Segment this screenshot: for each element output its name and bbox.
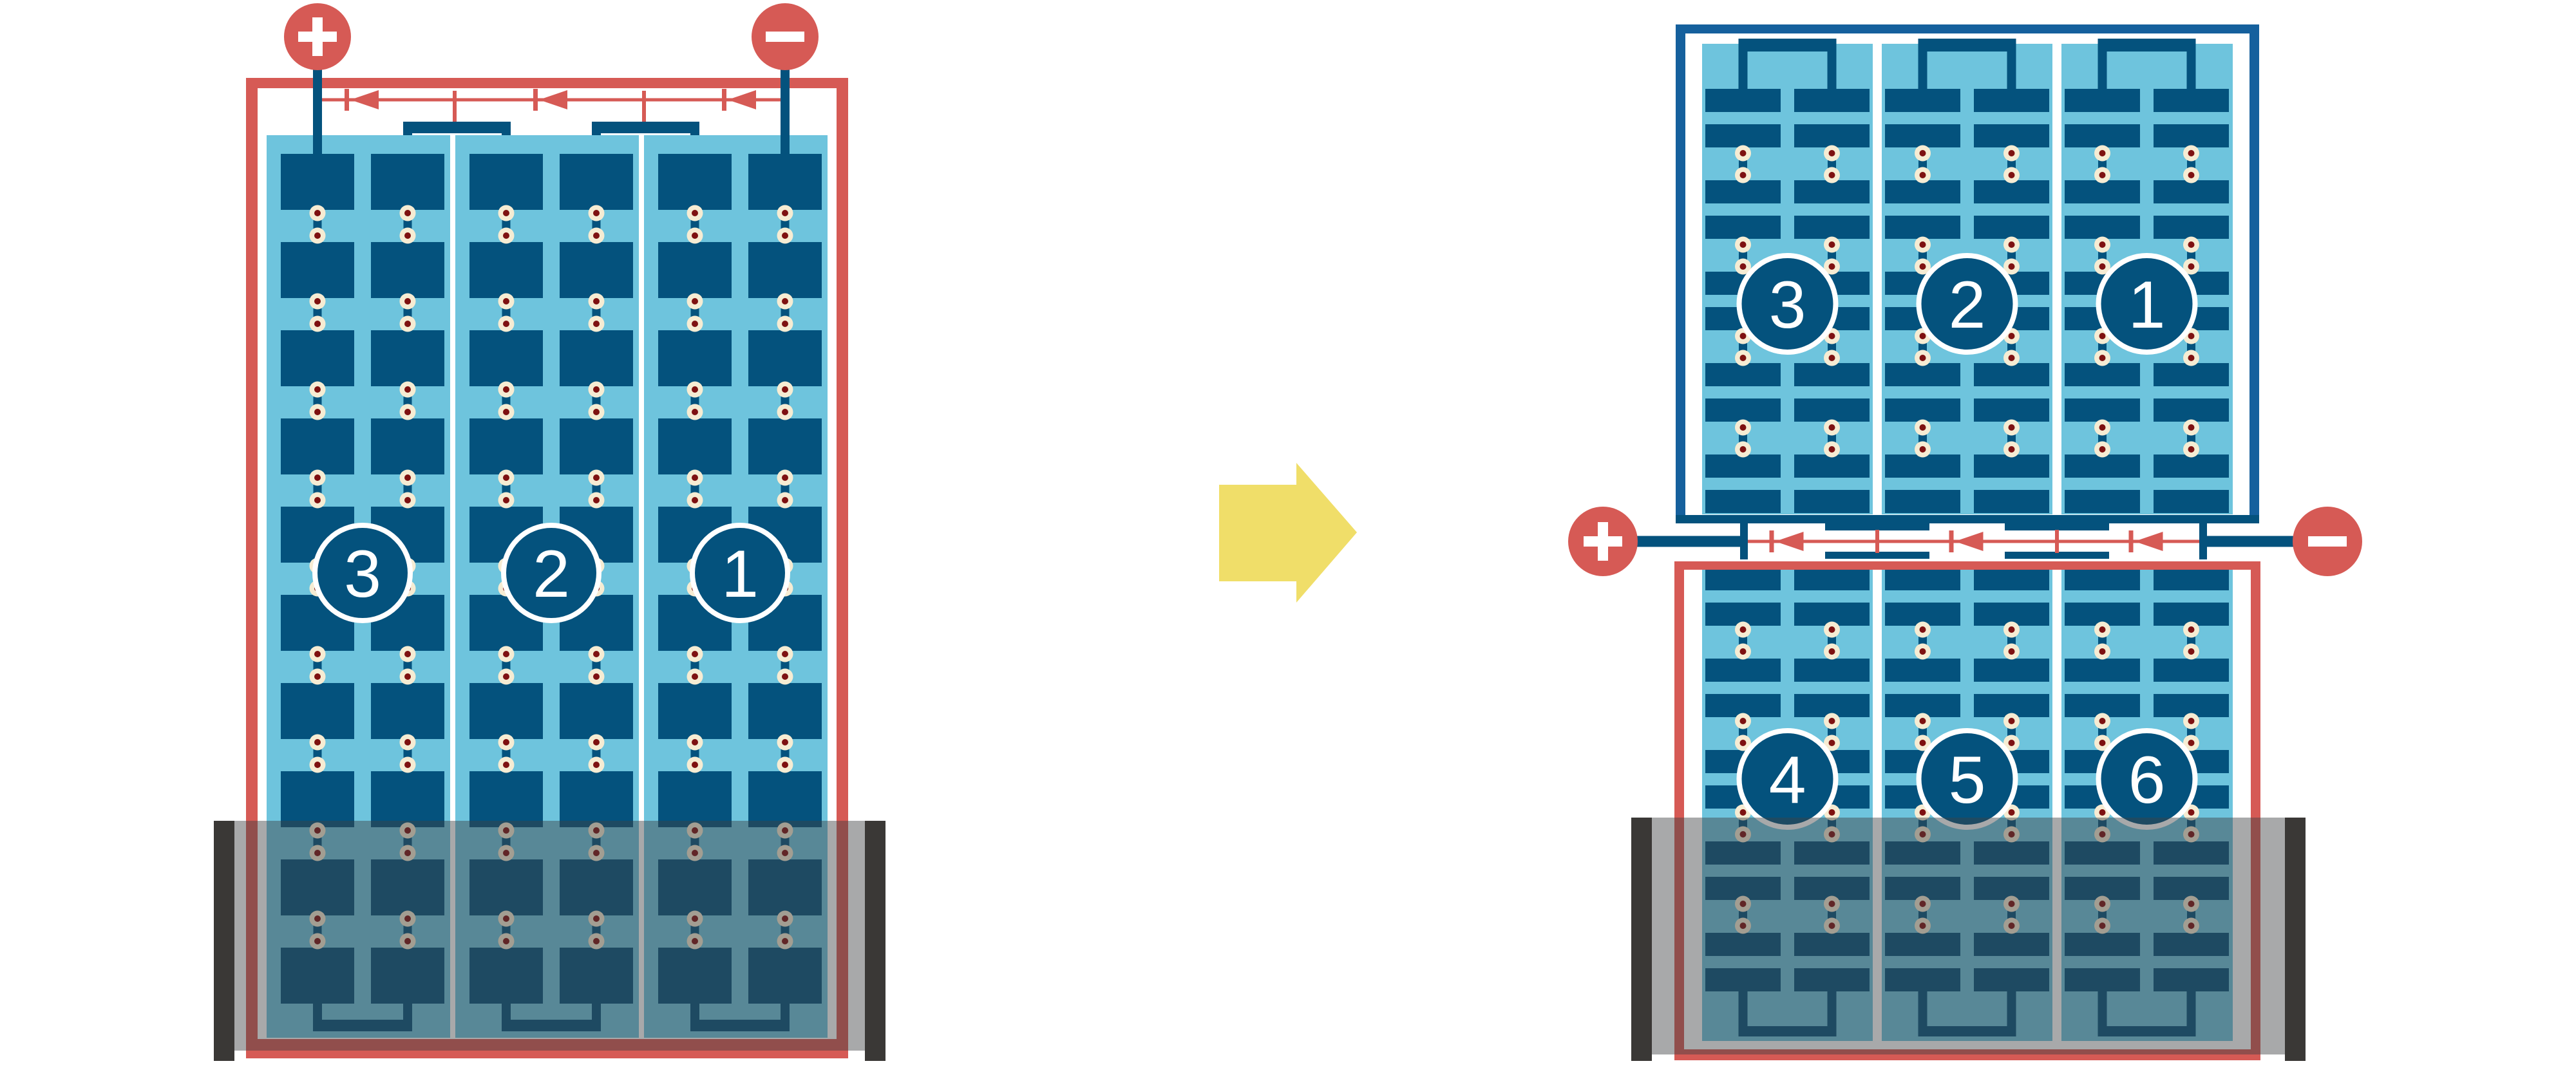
frame-top [246, 78, 848, 88]
string-number: 2 [533, 537, 570, 612]
string-number-badge: 1 [692, 525, 788, 621]
solar-cell [281, 242, 354, 298]
junction-diode-bus [1740, 523, 2207, 559]
solar-cell [1885, 398, 1960, 422]
solder-dot [1740, 626, 1747, 633]
minus-icon [2308, 536, 2347, 547]
solder-dot [1829, 424, 1835, 431]
solder-dot [503, 321, 509, 327]
solder-dot [404, 739, 411, 745]
solder-dot [1829, 355, 1835, 361]
solder-dot [1829, 333, 1835, 339]
solder-dot [314, 386, 321, 393]
solder-dot [1740, 241, 1747, 248]
solar-cell [1974, 567, 2049, 590]
interconnect-leg [1828, 50, 1837, 93]
solder-dot [692, 673, 698, 680]
string-number-badge: 6 [2099, 731, 2195, 827]
solar-cell [1885, 659, 1960, 682]
glyph-bar [2308, 536, 2347, 547]
solder-dot [782, 651, 788, 657]
solar-cell [1974, 398, 2049, 422]
solder-dot [1920, 424, 1926, 431]
solder-dot [503, 409, 509, 415]
solar-cell [2065, 180, 2140, 203]
string-number: 6 [2128, 743, 2166, 818]
half-panel-top: 321 [1702, 39, 2233, 514]
solder-dot [2009, 626, 2015, 633]
solder-dot [593, 474, 600, 481]
solar-cell [1794, 490, 1870, 513]
solar-cell [1885, 363, 1960, 386]
solar-cell [371, 683, 444, 739]
solder-dot [314, 298, 321, 304]
solar-cell [281, 771, 354, 827]
interconnect-leg [2098, 50, 2107, 93]
solder-dot [1829, 718, 1835, 724]
solder-dot [2099, 355, 2106, 361]
solar-cell [1794, 567, 1870, 590]
string-number-badge: 2 [1919, 256, 2016, 352]
solar-cell [1885, 567, 1960, 590]
solar-cell [1705, 363, 1781, 386]
solder-dot [1829, 446, 1835, 453]
solder-dot [1920, 740, 1926, 746]
bypass-diode-bus [317, 89, 785, 124]
solder-dot [692, 651, 698, 657]
string-divider [2052, 44, 2061, 514]
solder-dot [692, 232, 698, 239]
solder-dot [1829, 648, 1835, 655]
solder-dot [2188, 648, 2195, 655]
solder-dot [1829, 626, 1835, 633]
interconnect-leg [1739, 50, 1748, 93]
diode-cathode-bar [2129, 530, 2134, 552]
solder-dot [1740, 172, 1747, 178]
solder-dot [1740, 333, 1747, 339]
interconnect-bar [592, 122, 699, 133]
solar-cell [2154, 454, 2229, 478]
solder-dot [1740, 809, 1747, 816]
diode-bus-stub [642, 91, 646, 124]
solar-cell [1705, 567, 1781, 590]
solar-cell [1885, 490, 1960, 513]
solder-dot [1920, 150, 1926, 156]
solder-dot [782, 298, 788, 304]
solder-dot [1920, 648, 1926, 655]
solar-cell [2065, 490, 2140, 513]
solder-dot [1829, 809, 1835, 816]
transform-arrow [1219, 463, 1357, 603]
solar-cell [469, 771, 543, 827]
solder-dot [692, 497, 698, 503]
solder-dot [2099, 263, 2106, 270]
solder-dot [2009, 740, 2015, 746]
shade-edge-bar [865, 821, 885, 1061]
plus-terminal: + [284, 3, 351, 70]
solar-cell [469, 330, 543, 386]
solder-dot [1920, 333, 1926, 339]
string-number: 3 [1769, 268, 1806, 342]
interconnect-leg [1918, 50, 1927, 93]
solder-dot [1920, 263, 1926, 270]
string-number-badge: 1 [2099, 256, 2195, 352]
string-number-badge: 2 [504, 525, 599, 621]
solder-dot [404, 232, 411, 239]
solar-cell [2154, 216, 2229, 239]
solar-cell [281, 330, 354, 386]
solder-dot [1740, 263, 1747, 270]
diode-cathode-bar [345, 89, 349, 111]
solar-cell [748, 330, 822, 386]
solder-dot [503, 762, 509, 768]
solder-dot [593, 673, 600, 680]
solder-dot [782, 673, 788, 680]
solar-cell [1974, 454, 2049, 478]
solar-cell [371, 418, 444, 474]
solder-dot [1920, 241, 1926, 248]
diode-cathode-bar [1770, 530, 1774, 552]
solder-dot [782, 739, 788, 745]
solar-cell [2065, 124, 2140, 147]
solar-cell [2154, 180, 2229, 203]
solar-cell [1974, 363, 2049, 386]
solder-dot [314, 409, 321, 415]
glyph-bar [312, 17, 323, 56]
solder-dot [2009, 355, 2015, 361]
solder-dot [782, 232, 788, 239]
string-divider [1873, 44, 1882, 514]
solder-dot [2009, 446, 2015, 453]
solder-dot [2188, 424, 2195, 431]
solar-cell [371, 771, 444, 827]
solder-dot [782, 474, 788, 481]
solar-cell [560, 683, 633, 739]
solder-dot [503, 474, 509, 481]
frame-bottom-busbar [1676, 515, 2259, 523]
solar-cell [1974, 180, 2049, 203]
shade-band [1631, 818, 2306, 1054]
string-number: 4 [1769, 743, 1806, 818]
solder-dot [692, 321, 698, 327]
solar-cell [1705, 454, 1781, 478]
solar-cell [560, 154, 633, 210]
string-number: 1 [2128, 268, 2166, 342]
solder-dot [2099, 424, 2106, 431]
diode-arrow-icon [1955, 532, 1984, 551]
solder-dot [2009, 809, 2015, 816]
solar-cell [560, 242, 633, 298]
solder-dot [314, 210, 321, 216]
solar-cell [2065, 567, 2140, 590]
solder-dot [692, 762, 698, 768]
solar-cell [2154, 490, 2229, 513]
solar-cell [658, 418, 732, 474]
solder-dot [404, 673, 411, 680]
solder-dot [2188, 718, 2195, 724]
solder-dot [2188, 355, 2195, 361]
solder-dot [2009, 648, 2015, 655]
diode-arrow-icon [539, 90, 567, 109]
solder-dot [593, 386, 600, 393]
solder-dot [2099, 150, 2106, 156]
solar-cell [1794, 180, 1870, 203]
solar-cell [2065, 659, 2140, 682]
glyph-bar [1598, 522, 1608, 561]
solar-cell [658, 154, 732, 210]
solar-cell [1794, 659, 1870, 682]
solar-cell [281, 154, 354, 210]
solder-dot [404, 762, 411, 768]
solder-dot [1920, 355, 1926, 361]
diode-arrow-icon [350, 90, 379, 109]
solar-cell [469, 683, 543, 739]
solar-cell [371, 242, 444, 298]
solder-dot [314, 651, 321, 657]
solder-dot [2099, 648, 2106, 655]
solder-dot [2009, 241, 2015, 248]
junction-bus-tab [1825, 523, 1929, 530]
solder-dot [314, 321, 321, 327]
solder-dot [503, 232, 509, 239]
minus-terminal: − [2293, 507, 2362, 576]
string-number: 2 [1949, 268, 1986, 342]
solar-cell [371, 330, 444, 386]
solder-dot [404, 210, 411, 216]
solder-dot [2009, 263, 2015, 270]
solder-dot [593, 298, 600, 304]
solar-cell [1974, 124, 2049, 147]
solder-dot [2009, 333, 2015, 339]
string-number-badge: 3 [315, 525, 410, 621]
interconnect-bar [403, 122, 511, 133]
solder-dot [593, 497, 600, 503]
solder-dot [2188, 809, 2195, 816]
solar-cell [658, 242, 732, 298]
solar-cell [1885, 180, 1960, 203]
solder-dot [782, 497, 788, 503]
solder-dot [404, 321, 411, 327]
string-number: 1 [721, 537, 759, 612]
plus-terminal: + [1568, 507, 1638, 576]
solder-dot [593, 232, 600, 239]
solar-cell [658, 683, 732, 739]
solar-cell [1705, 124, 1781, 147]
solder-dot [1920, 172, 1926, 178]
diagram: +−321 321+−456 [0, 0, 2576, 1068]
solder-dot [404, 497, 411, 503]
solar-cell [2154, 124, 2229, 147]
solder-dot [2188, 263, 2195, 270]
solder-dot [314, 739, 321, 745]
solder-dot [2009, 172, 2015, 178]
solder-dot [503, 386, 509, 393]
solder-dot [2188, 626, 2195, 633]
solar-cell [658, 771, 732, 827]
solder-dot [2188, 446, 2195, 453]
solder-dot [503, 673, 509, 680]
solder-dot [1740, 150, 1747, 156]
solder-dot [2009, 424, 2015, 431]
solar-cell [1705, 659, 1781, 682]
solar-cell [1885, 454, 1960, 478]
solder-dot [2099, 740, 2106, 746]
solder-dot [503, 739, 509, 745]
solder-dot [1920, 718, 1926, 724]
solder-dot [314, 497, 321, 503]
solar-cell [560, 330, 633, 386]
solar-cell [2065, 216, 2140, 239]
solder-dot [503, 298, 509, 304]
solder-dot [2099, 809, 2106, 816]
solar-cell [1974, 490, 2049, 513]
solar-cell [469, 154, 543, 210]
string-number-badge: 5 [1919, 731, 2016, 827]
frame-top [1674, 561, 2260, 570]
solder-dot [314, 232, 321, 239]
solder-dot [1740, 446, 1747, 453]
solar-cell [1974, 659, 2049, 682]
solar-cell [2154, 363, 2229, 386]
string-number-badge: 3 [1739, 256, 1836, 352]
shade-edge-bar [214, 821, 234, 1061]
diode-arrow-icon [2135, 532, 2163, 551]
solder-dot [692, 474, 698, 481]
interconnect-bar [1918, 39, 2016, 52]
solder-dot [1829, 740, 1835, 746]
solder-dot [692, 298, 698, 304]
solar-cell [748, 242, 822, 298]
frame-right [2249, 24, 2259, 523]
solder-dot [404, 386, 411, 393]
solder-dot [2099, 626, 2106, 633]
solder-dot [1829, 263, 1835, 270]
solar-cell [560, 771, 633, 827]
shade-left [214, 821, 885, 1061]
solar-cell [748, 683, 822, 739]
solar-cell [371, 154, 444, 210]
shade-band [214, 821, 885, 1051]
solder-dot [2188, 740, 2195, 746]
solder-dot [503, 651, 509, 657]
solder-dot [2188, 172, 2195, 178]
solder-dot [1740, 648, 1747, 655]
diode-cathode-bar [722, 89, 726, 111]
solar-cell [2065, 454, 2140, 478]
solar-cell [748, 771, 822, 827]
shade-edge-bar [2285, 818, 2306, 1061]
solar-cell [1705, 216, 1781, 239]
string-number: 3 [344, 537, 381, 612]
solder-dot [404, 409, 411, 415]
solder-dot [2188, 241, 2195, 248]
solder-dot [1829, 172, 1835, 178]
glyph-bar [766, 32, 804, 42]
solder-dot [503, 210, 509, 216]
solder-dot [2009, 718, 2015, 724]
solar-cell [560, 418, 633, 474]
solder-dot [782, 321, 788, 327]
junction-end-bar [2199, 523, 2207, 559]
solar-cell [469, 418, 543, 474]
frame-left [1676, 24, 1685, 523]
minus-terminal: − [752, 3, 819, 70]
solar-cell [748, 154, 822, 210]
diode-cathode-bar [1949, 530, 1954, 552]
solder-dot [593, 409, 600, 415]
shading-overlay [214, 818, 2306, 1061]
interconnect-bar [2098, 39, 2196, 52]
solder-dot [782, 762, 788, 768]
frame-top [1676, 24, 2259, 33]
solar-cell [2154, 659, 2229, 682]
solar-cell [2154, 567, 2229, 590]
solar-cell [1885, 216, 1960, 239]
solar-cell [2065, 363, 2140, 386]
solder-dot [314, 762, 321, 768]
solder-dot [2099, 446, 2106, 453]
solder-dot [692, 210, 698, 216]
interconnect-bar [1739, 39, 1837, 52]
solar-cell [281, 683, 354, 739]
solder-dot [404, 474, 411, 481]
diode-arrow-icon [728, 90, 756, 109]
solar-cell [1794, 398, 1870, 422]
solar-cell [748, 418, 822, 474]
solar-cell [1974, 216, 2049, 239]
solder-dot [1920, 809, 1926, 816]
solder-dot [1920, 626, 1926, 633]
solder-dot [2099, 172, 2106, 178]
solar-cell [1705, 398, 1781, 422]
solder-dot [404, 651, 411, 657]
solar-cell [1794, 363, 1870, 386]
solder-dot [1829, 241, 1835, 248]
solar-cell [2154, 398, 2229, 422]
solder-dot [692, 409, 698, 415]
solder-dot [593, 762, 600, 768]
diode-arrow-icon [1776, 532, 1804, 551]
diagram-canvas: +−321 321+−456 [0, 0, 2576, 1068]
diode-bus-stub [453, 91, 457, 124]
solar-cell [469, 242, 543, 298]
solder-dot [404, 298, 411, 304]
solder-dot [503, 497, 509, 503]
solder-dot [692, 386, 698, 393]
string-number-badge: 4 [1739, 731, 1836, 827]
solar-cell [1885, 124, 1960, 147]
shade-edge-bar [1631, 818, 1652, 1061]
solder-dot [692, 739, 698, 745]
solar-cell [281, 418, 354, 474]
diode-cathode-bar [533, 89, 538, 111]
solar-cell [1794, 454, 1870, 478]
solder-dot [2009, 150, 2015, 156]
solder-dot [314, 474, 321, 481]
solar-cell [1705, 180, 1781, 203]
solder-dot [782, 210, 788, 216]
solder-dot [314, 673, 321, 680]
solder-dot [1920, 446, 1926, 453]
solder-dot [782, 409, 788, 415]
solder-dot [593, 321, 600, 327]
interconnect-leg [2187, 50, 2196, 93]
solder-dot [1740, 355, 1747, 361]
solder-dot [593, 651, 600, 657]
solder-dot [1740, 740, 1747, 746]
solder-dot [2188, 333, 2195, 339]
junction-bus-tab [2005, 523, 2109, 530]
